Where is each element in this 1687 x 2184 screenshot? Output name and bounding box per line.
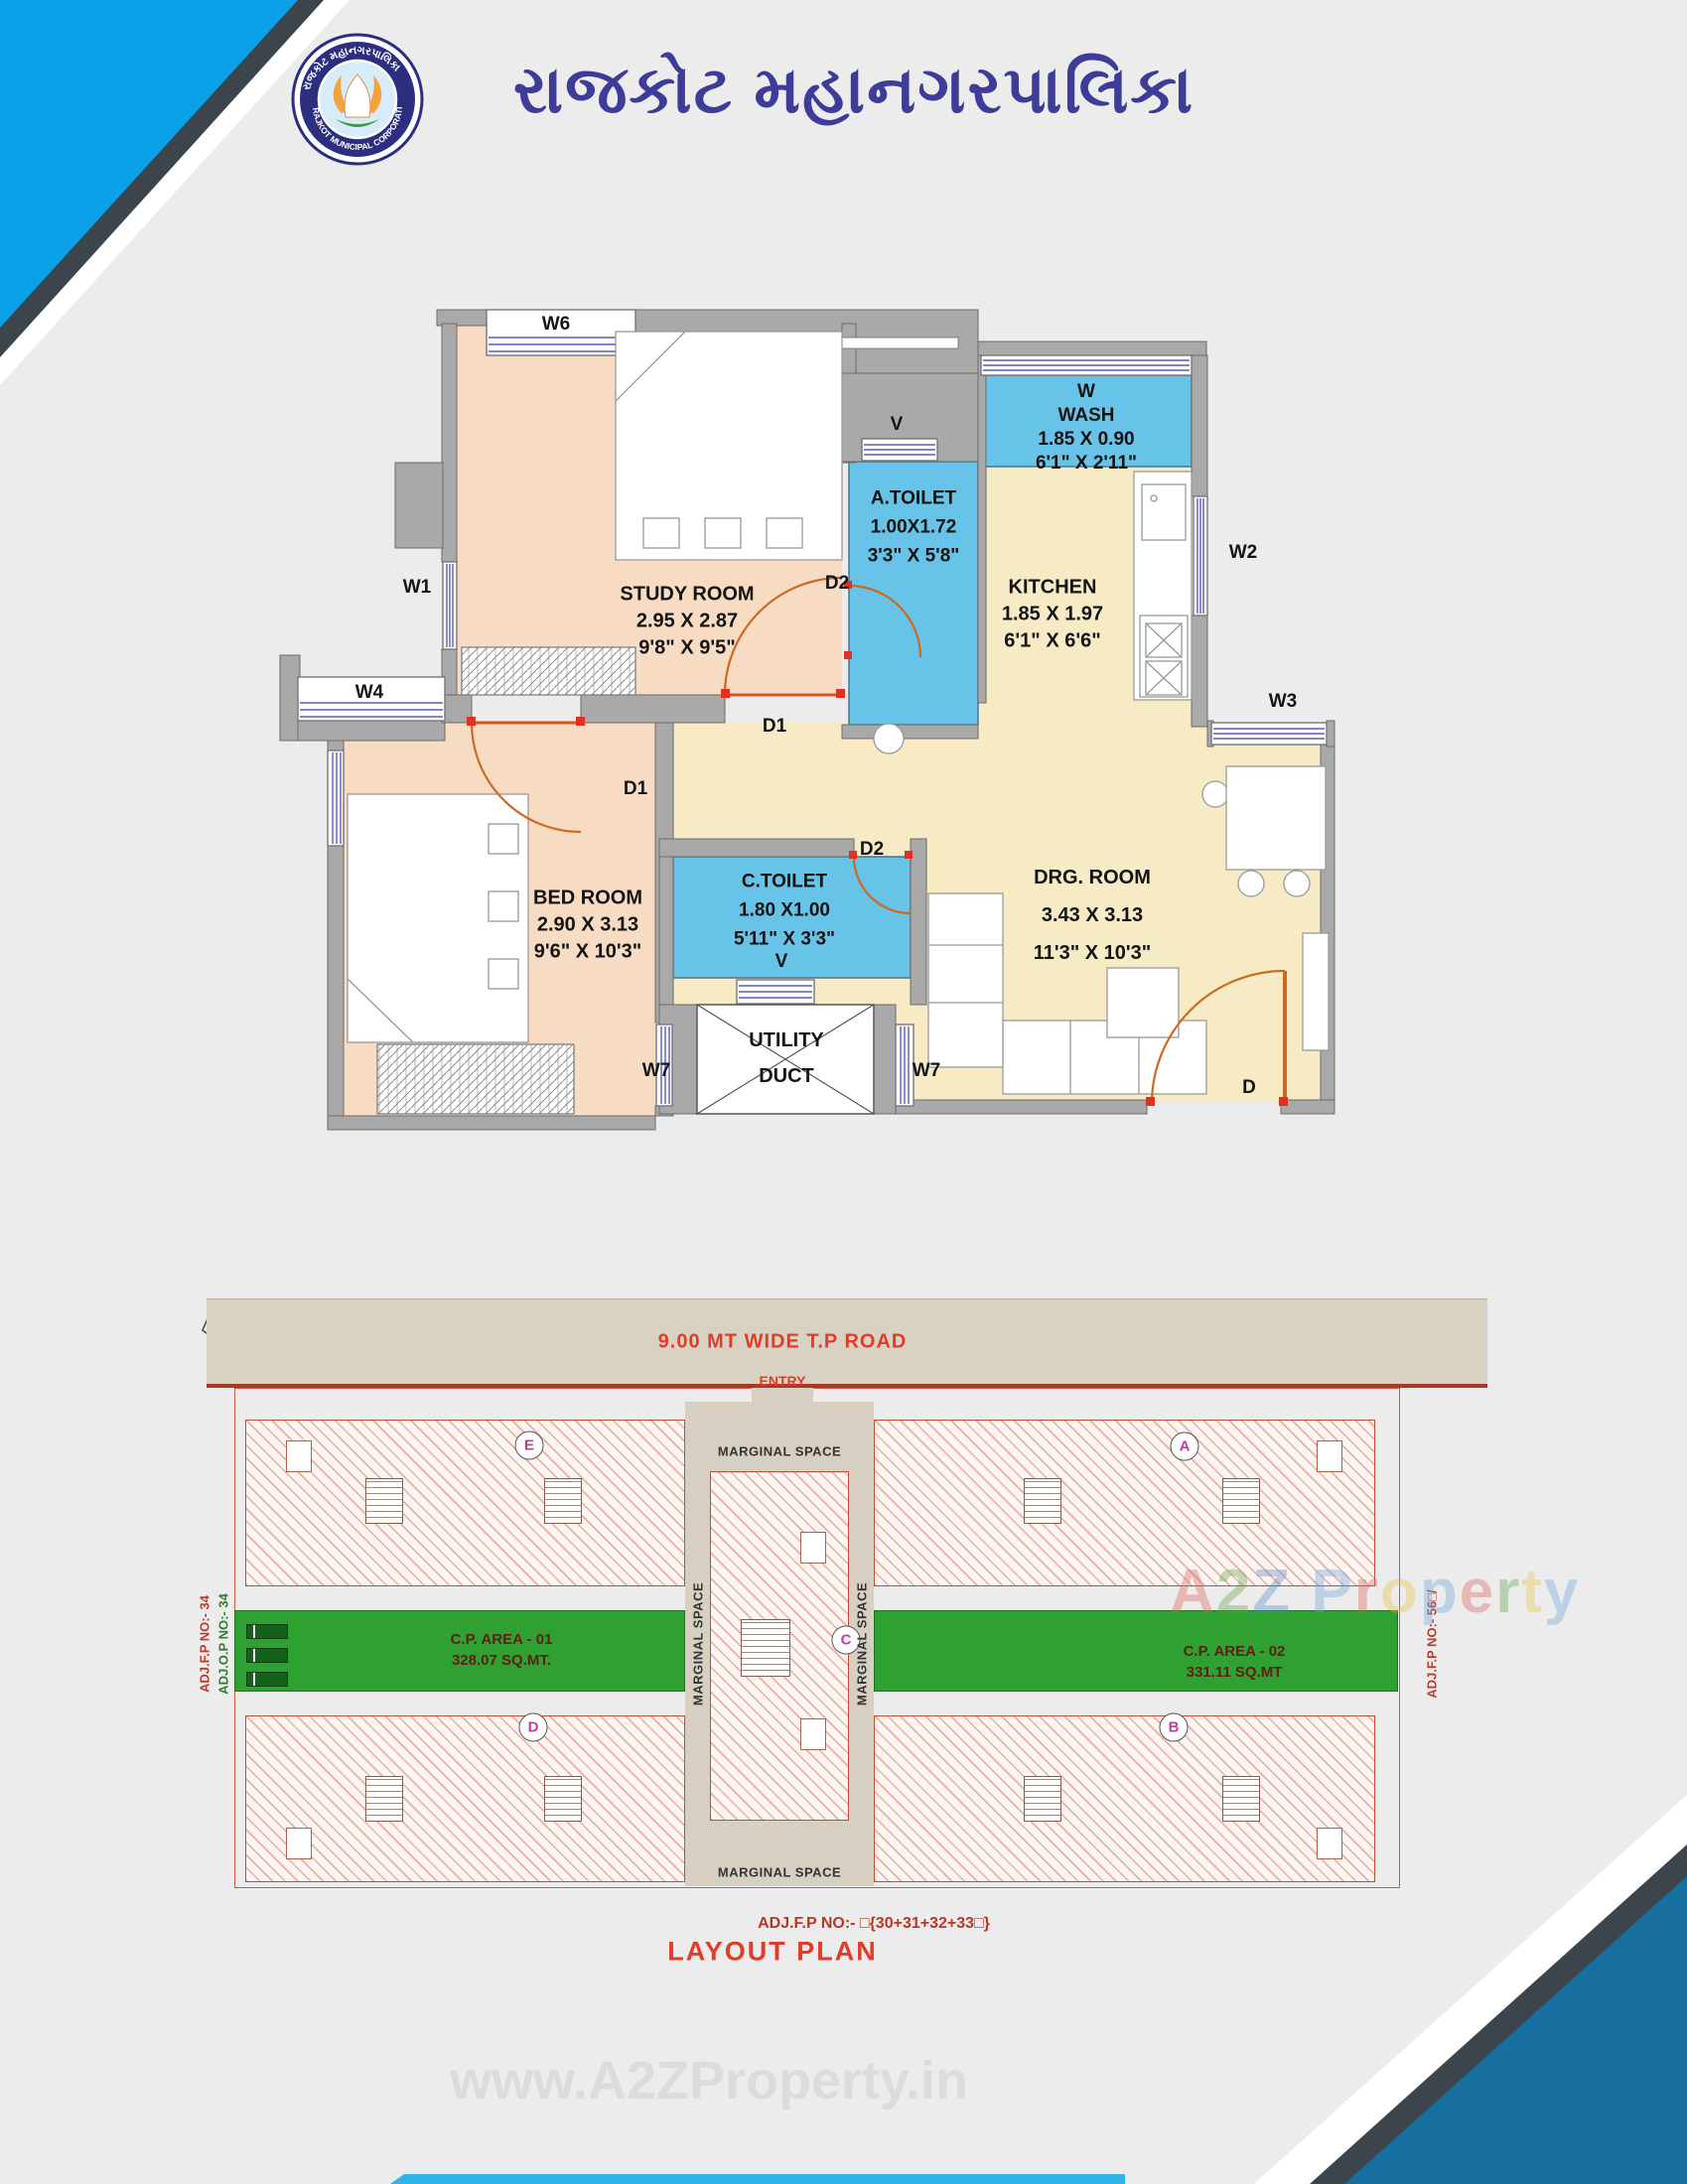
window-label-w4: W4: [355, 682, 384, 704]
adj-fp-bottom-label: ADJ.F.P NO:- □{30+31+32+33□}: [758, 1915, 990, 1933]
door-label-d-main: D: [1242, 1077, 1256, 1099]
wash-basin: [874, 724, 904, 753]
marginal-space-top: MARGINAL SPACE: [718, 1444, 841, 1459]
wall-slit: [839, 338, 958, 348]
vent-v-ctoilet: [737, 980, 814, 1004]
stair-core: [1024, 1478, 1061, 1524]
brand-letter: e: [1460, 1558, 1495, 1626]
brand-letter: y: [1544, 1558, 1580, 1626]
stair-core: [544, 1478, 582, 1524]
vent-label-v-top: V: [891, 414, 904, 436]
brand-watermark: A2Z Property: [1170, 1557, 1580, 1627]
building-e-slab: [245, 1420, 685, 1586]
brand-letter: p: [1420, 1558, 1460, 1626]
lift-shaft: [1317, 1828, 1342, 1859]
wash-label: W WASH 1.85 X 0.90 6'1" X 2'11": [1036, 380, 1137, 476]
building-d-slab: [245, 1715, 685, 1882]
brand-letter: P: [1311, 1558, 1353, 1626]
window-w2: [1194, 496, 1207, 615]
cp-area-2-label: C.P. AREA - 02 331.11 SQ.MT: [1184, 1641, 1286, 1683]
bedroom-bed: [348, 794, 528, 1042]
vent-v-top: [862, 439, 937, 461]
lift-shaft: [286, 1828, 312, 1859]
door-label-d1-bedroom: D1: [624, 778, 647, 800]
brand-letter: r: [1354, 1558, 1380, 1626]
window-label-w7-left: W7: [642, 1060, 671, 1082]
stair-core: [365, 1776, 403, 1822]
brand-letter: A: [1170, 1558, 1216, 1626]
marginal-space-bottom: MARGINAL SPACE: [718, 1865, 841, 1880]
layout-plan-title: LAYOUT PLAN: [667, 1937, 878, 1968]
window-wash-top: [981, 355, 1192, 375]
lift-shaft: [800, 1532, 826, 1564]
door-label-d2-ctoilet: D2: [860, 839, 884, 861]
building-b-slab: [874, 1715, 1375, 1882]
window-label-w6: W6: [542, 314, 571, 336]
window-w3: [1211, 723, 1327, 745]
window-w1: [443, 562, 457, 649]
playground-equipment-icon: [246, 1648, 288, 1663]
kitchen-label: KITCHEN 1.85 X 1.97 6'1" X 6'6": [1002, 575, 1103, 655]
brand-letter: [1292, 1558, 1311, 1626]
bed-room-label: BED ROOM 2.90 X 3.13 9'6" X 10'3": [533, 886, 642, 966]
brand-letter: r: [1495, 1558, 1521, 1626]
block-letter-a: A: [1171, 1433, 1199, 1461]
cp-area-1-label: C.P. AREA - 01 328.07 SQ.MT.: [451, 1629, 553, 1671]
stair-core: [544, 1776, 582, 1822]
block-letter-b: B: [1160, 1713, 1189, 1742]
study-bed: [616, 332, 842, 560]
marginal-space-right: MARGINAL SPACE: [855, 1582, 870, 1706]
block-letter-e: E: [515, 1432, 544, 1460]
a-toilet-label: A.TOILET 1.00X1.72 3'3" X 5'8": [868, 484, 960, 571]
stair-core: [1024, 1776, 1061, 1822]
lift-shaft: [800, 1718, 826, 1750]
window-label-w2: W2: [1229, 542, 1258, 564]
brand-letter: o: [1380, 1558, 1420, 1626]
entry-label: ENTRY: [760, 1373, 806, 1389]
brand-letter: Z: [1252, 1558, 1292, 1626]
stair-core: [1222, 1776, 1260, 1822]
window-bed-left: [328, 751, 344, 846]
adj-fp-left-label: ADJ.F.P NO:- 34: [198, 1595, 212, 1693]
window-label-w1: W1: [403, 577, 432, 599]
building-c-slab: [710, 1471, 849, 1821]
lift-shaft: [1317, 1440, 1342, 1472]
stair-core: [365, 1478, 403, 1524]
brand-letter: t: [1521, 1558, 1544, 1626]
brand-letter: 2: [1216, 1558, 1252, 1626]
playground-equipment-icon: [246, 1672, 288, 1687]
entry-notch: [752, 1388, 813, 1404]
window-label-w3: W3: [1269, 691, 1298, 713]
c-toilet-label: C.TOILET 1.80 X1.00 5'11" X 3'3": [734, 868, 835, 954]
center-table: [1107, 968, 1179, 1037]
cabinet: [928, 893, 1003, 1067]
adj-op-left-label: ADJ.O.P NO:- 34: [216, 1593, 231, 1695]
window-label-w7-right: W7: [913, 1060, 941, 1082]
drg-room-label: DRG. ROOM 3.43 X 3.13 11'3" X 10'3": [1034, 859, 1152, 972]
block-letter-d: D: [519, 1713, 548, 1742]
door-label-d1-study: D1: [763, 716, 786, 738]
window-w7-right: [896, 1024, 914, 1106]
stair-core: [1222, 1478, 1260, 1524]
marginal-space-left: MARGINAL SPACE: [691, 1582, 706, 1706]
document-page: રાજકોટ મહાનગરપાલિકા RAJKOT MUNICIPAL COR…: [0, 0, 1687, 2184]
site-watermark: www.A2ZProperty.in: [450, 2050, 968, 2112]
study-room-label: STUDY ROOM 2.95 X 2.87 9'8" X 9'5": [620, 582, 754, 662]
stair-core: [741, 1619, 790, 1677]
lift-shaft: [286, 1440, 312, 1472]
tv-unit: [1303, 933, 1329, 1050]
playground-equipment-icon: [246, 1624, 288, 1639]
kitchen-platform: [1134, 472, 1192, 700]
utility-duct-label: UTILITY DUCT: [749, 1023, 824, 1094]
c-toilet-vent-label: V: [775, 951, 788, 973]
road-label: 9.00 MT WIDE T.P ROAD: [658, 1331, 908, 1354]
door-label-d2-top: D2: [825, 573, 849, 595]
